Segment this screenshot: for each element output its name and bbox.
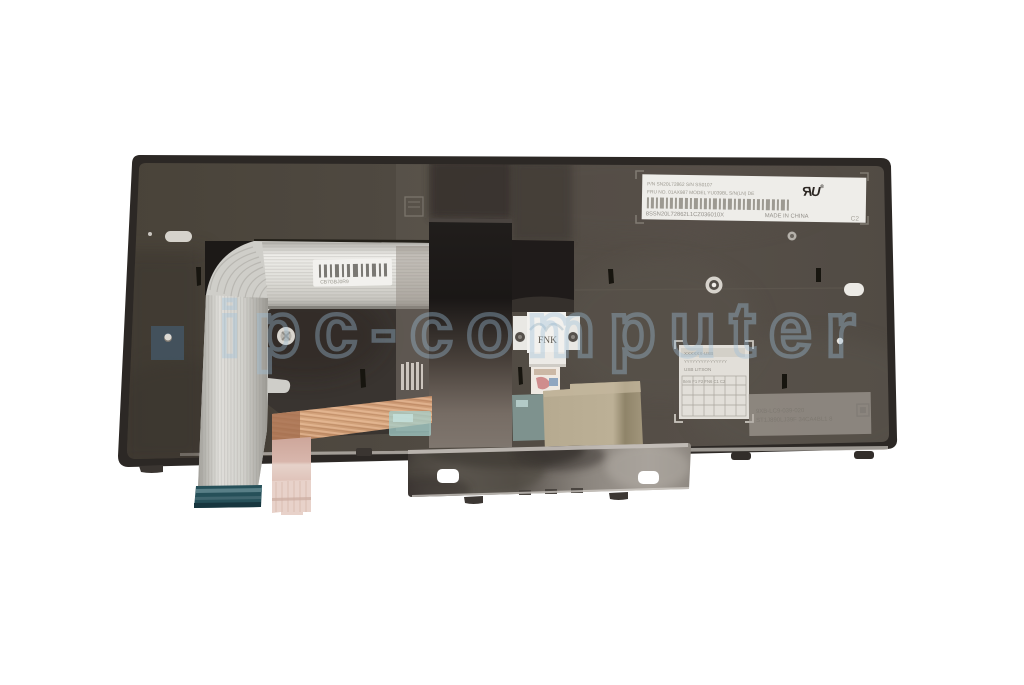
svg-text:P/N SN20L72862 S/N: P/N SN20L72862 S/N SS0107 bbox=[647, 181, 712, 188]
svg-text:CB7GBJ0R9: CB7GBJ0R9 bbox=[320, 279, 349, 286]
svg-text:MADE IN CHINA: MADE IN CHINA bbox=[765, 213, 809, 220]
svg-text:8SSN20L72862L1CZ036010X: 8SSN20L72862L1CZ036010X bbox=[646, 211, 725, 218]
svg-text:9XB-LC9-039-020: 9XB-LC9-039-020 bbox=[756, 408, 805, 415]
svg-text:C2: C2 bbox=[851, 216, 860, 223]
svg-text:ipc-computer: ipc-computer bbox=[219, 287, 869, 373]
svg-text:®: ® bbox=[820, 183, 824, 190]
svg-text:Item F1 F2 FN6 C1 C2: Item F1 F2 FN6 C1 C2 bbox=[683, 379, 726, 384]
